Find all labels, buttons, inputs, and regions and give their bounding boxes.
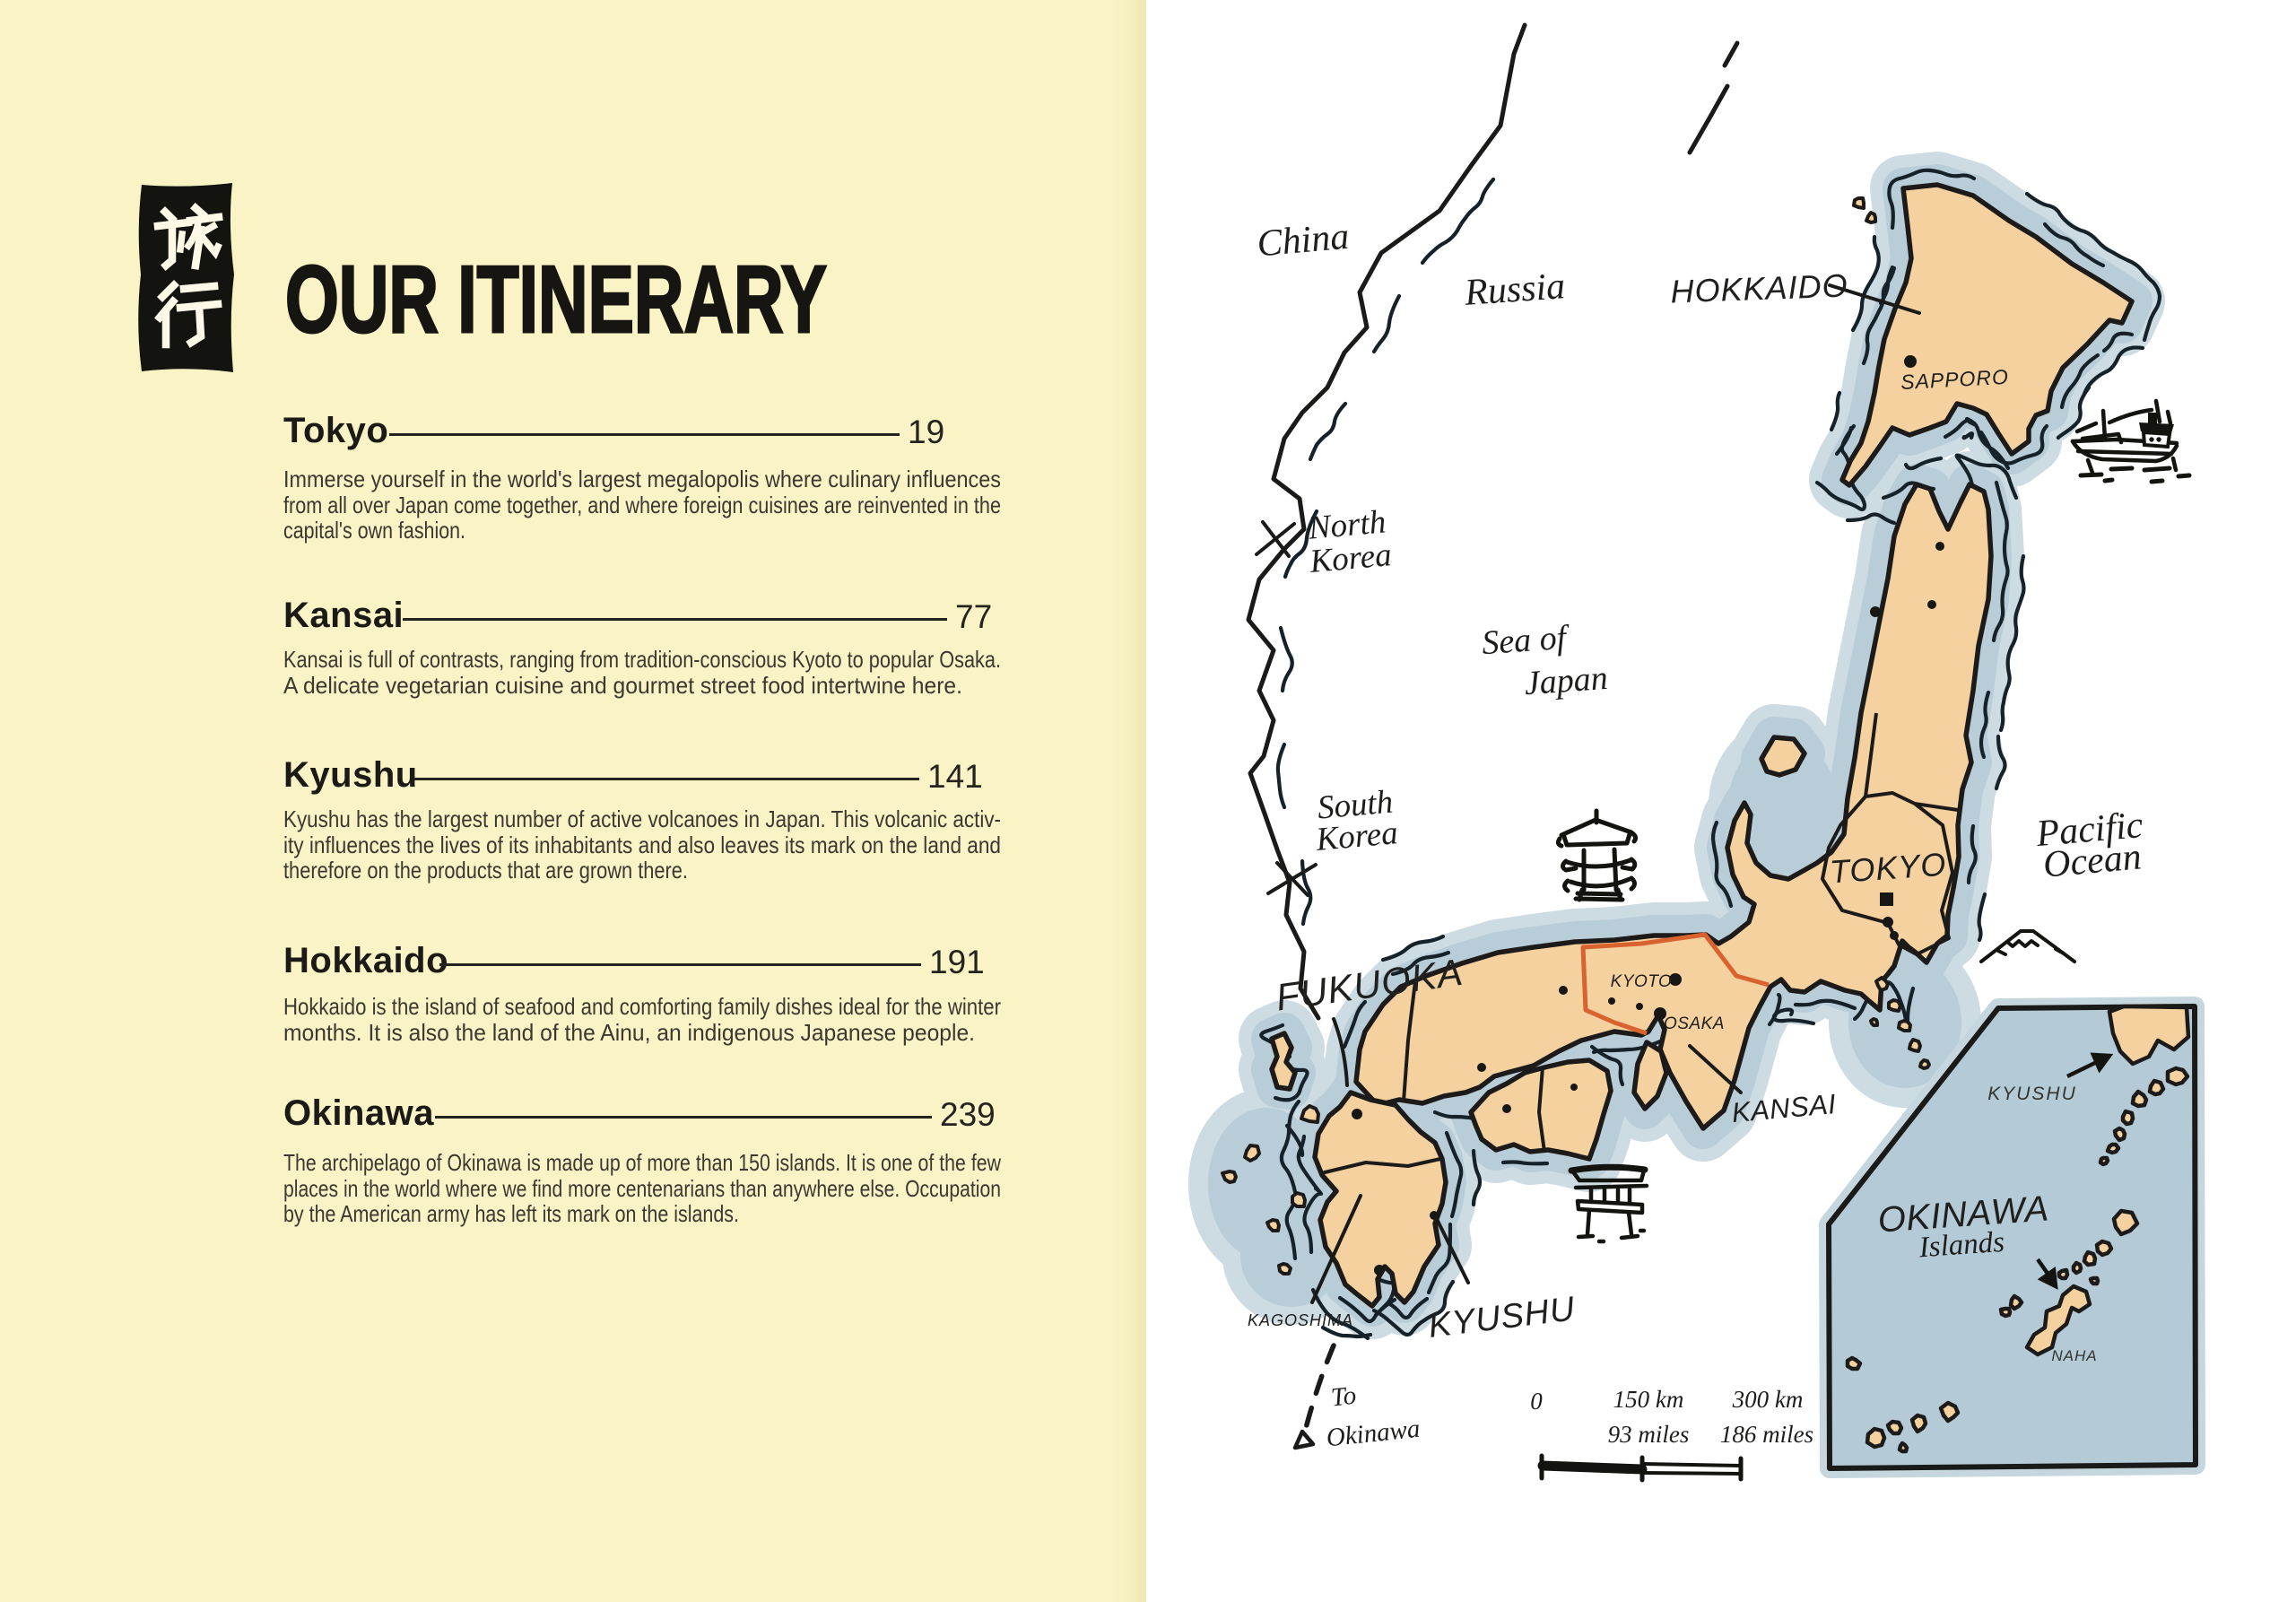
svg-text:capital's own fashion.: capital's own fashion. xyxy=(283,517,465,544)
svg-text:China: China xyxy=(1256,216,1351,266)
svg-text:Japan: Japan xyxy=(1523,659,1609,702)
svg-text:Kyushu has the largest number: Kyushu has the largest number of active … xyxy=(283,808,1001,832)
svg-text:KYOTO: KYOTO xyxy=(1611,972,1673,991)
svg-text:from all over Japan come toget: from all over Japan come together, and w… xyxy=(283,492,1001,518)
svg-text:OSAKA: OSAKA xyxy=(1664,1014,1725,1033)
svg-text:The archipelago of Okinawa is: The archipelago of Okinawa is made up of… xyxy=(283,1152,1001,1176)
svg-text:Sea of: Sea of xyxy=(1481,618,1571,662)
svg-text:therefore on the products that: therefore on the products that are grown… xyxy=(283,857,688,884)
svg-text:Ocean: Ocean xyxy=(2041,836,2143,885)
svg-text:Okinawa: Okinawa xyxy=(1325,1415,1421,1453)
svg-text:300 km: 300 km xyxy=(1732,1386,1804,1413)
svg-text:To: To xyxy=(1329,1381,1357,1413)
svg-text:0: 0 xyxy=(1530,1388,1543,1415)
svg-text:Immerse yourself in the world': Immerse yourself in the world's largest … xyxy=(283,468,1001,492)
svg-text:KAGOSHIMA: KAGOSHIMA xyxy=(1248,1311,1353,1329)
svg-text:HOKKAIDO: HOKKAIDO xyxy=(1670,267,1848,310)
svg-text:150 km: 150 km xyxy=(1613,1386,1684,1413)
svg-text:Russia: Russia xyxy=(1463,266,1567,314)
svg-text:ity influences the lives of it: ity influences the lives of its inhabita… xyxy=(283,831,1001,858)
svg-text:186 miles: 186 miles xyxy=(1720,1421,1813,1448)
svg-text:KYUSHU: KYUSHU xyxy=(1987,1084,2077,1104)
svg-text:Hokkaido is the island of seaf: Hokkaido is the island of seafood and co… xyxy=(283,996,1001,1020)
svg-text:Korea: Korea xyxy=(1314,814,1399,858)
svg-text:by the American army has left: by the American army has left its mark o… xyxy=(283,1200,739,1227)
svg-text:months. It is also the land of: months. It is also the land of the Ainu,… xyxy=(283,1019,975,1046)
svg-text:NAHA: NAHA xyxy=(2051,1347,2097,1364)
svg-text:Kansai is full of contrasts, r: Kansai is full of contrasts, ranging fro… xyxy=(283,649,1001,673)
svg-text:93 miles: 93 miles xyxy=(1608,1421,1690,1448)
svg-text:KYUSHU: KYUSHU xyxy=(1426,1290,1577,1345)
svg-text:places in the world where we f: places in the world where we find more c… xyxy=(283,1175,1001,1202)
svg-text:Korea: Korea xyxy=(1308,536,1393,580)
svg-text:A delicate vegetarian cuisine: A delicate vegetarian cuisine and gourme… xyxy=(283,672,962,699)
svg-text:OUR ITINERARY: OUR ITINERARY xyxy=(285,247,827,350)
